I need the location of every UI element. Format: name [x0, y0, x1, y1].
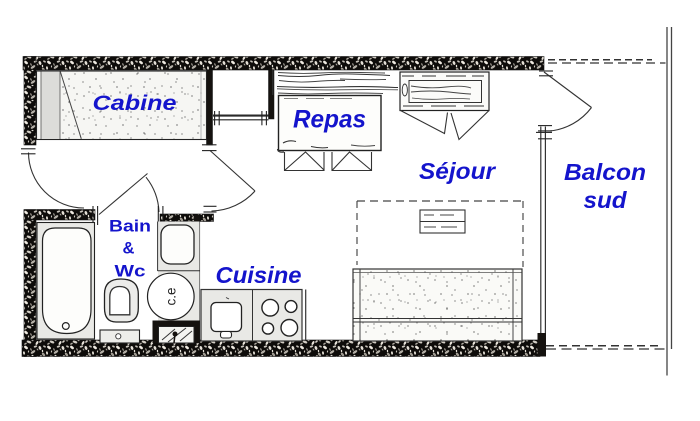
- svg-text:sud: sud: [584, 187, 628, 213]
- svg-text:Séjour: Séjour: [419, 158, 496, 184]
- svg-text:c.e: c.e: [163, 287, 178, 305]
- svg-text:Bain: Bain: [109, 218, 151, 236]
- svg-text:Cuisine: Cuisine: [216, 262, 302, 288]
- svg-text:Cabine: Cabine: [93, 92, 177, 115]
- svg-text:Repas: Repas: [293, 106, 366, 134]
- svg-text:Balcon: Balcon: [564, 159, 646, 185]
- svg-text:&: &: [123, 240, 135, 258]
- svg-text:Wc: Wc: [115, 263, 146, 281]
